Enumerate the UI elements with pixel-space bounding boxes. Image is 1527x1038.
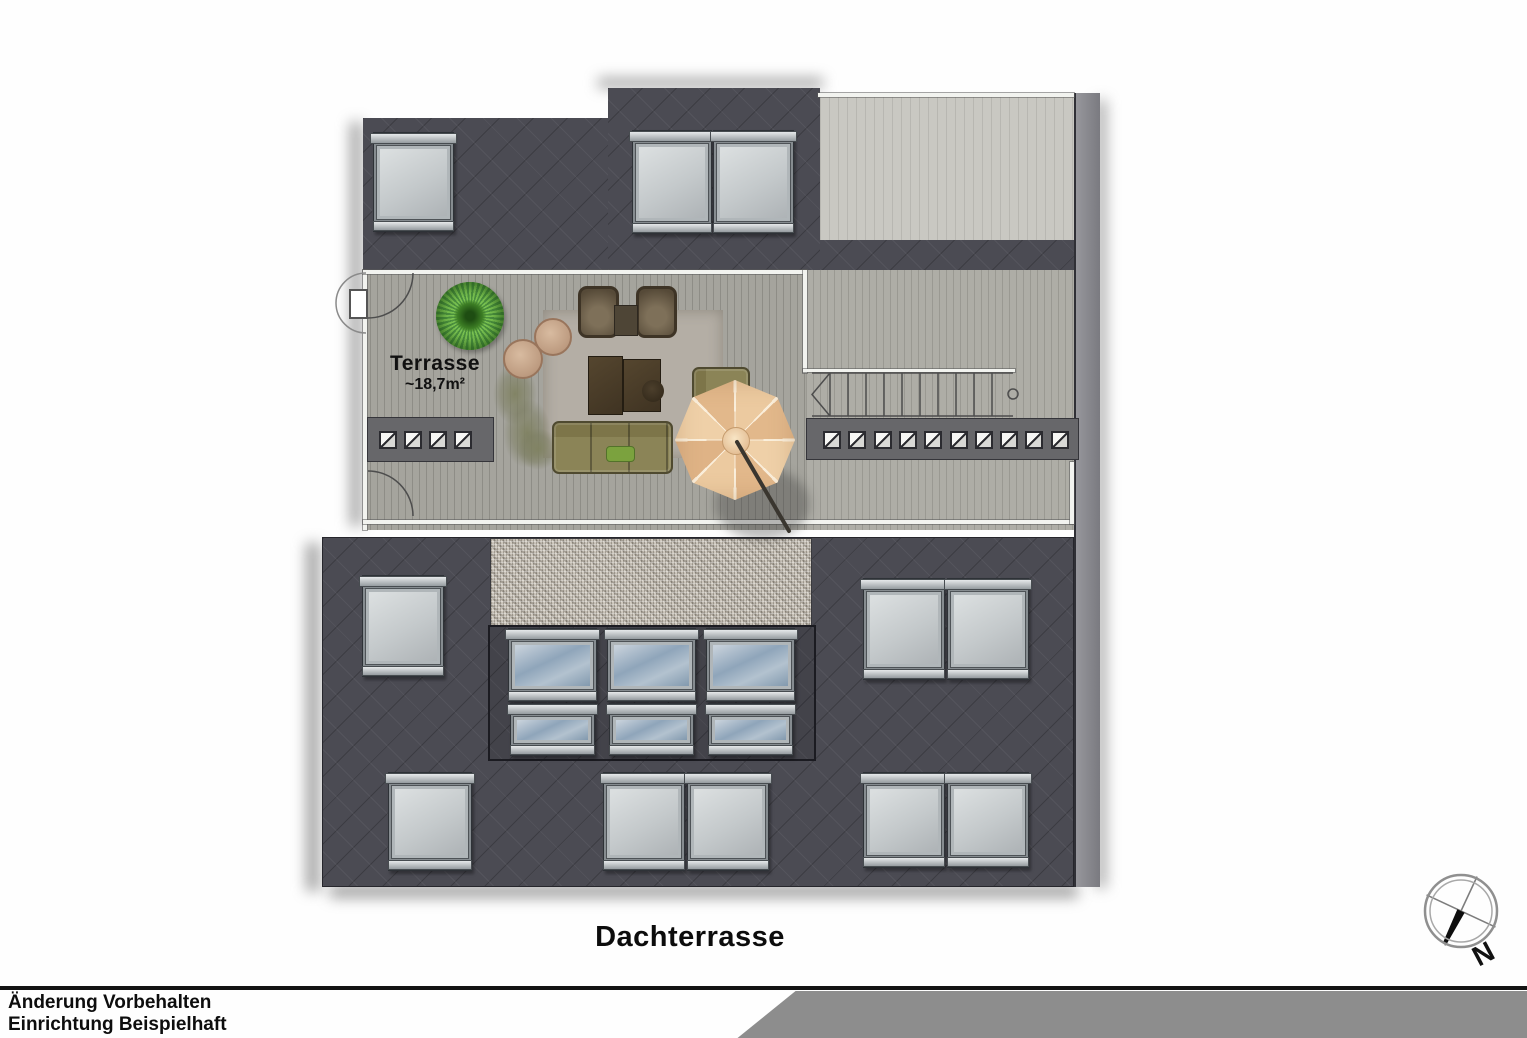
window-glass: [514, 717, 591, 743]
right-decking: [806, 270, 1074, 530]
window-sill-top: [944, 773, 1032, 784]
round-stool: [642, 380, 664, 402]
roof-window: [713, 130, 794, 234]
potted-plant-center: [454, 300, 486, 332]
window-glass: [392, 786, 468, 858]
parasol-hub: [722, 427, 750, 455]
deck-border-line: [1070, 462, 1074, 524]
window-sill-top: [705, 704, 796, 715]
railing-post-square: [924, 431, 942, 449]
roof-window: [863, 578, 945, 680]
window-sill-top: [860, 773, 948, 784]
railing-post-square: [404, 431, 422, 449]
roof-window: [362, 575, 444, 677]
railing-post-square: [1000, 431, 1018, 449]
sofa-pillow: [606, 446, 635, 462]
railing-post-square: [379, 431, 397, 449]
window-glass: [717, 144, 790, 221]
window-sill-top: [604, 629, 699, 640]
window-sill-top: [629, 131, 715, 142]
window-sill-top: [860, 579, 948, 590]
window-glass: [691, 786, 765, 858]
deck-border-line: [363, 270, 367, 530]
deck-border-line: [363, 270, 806, 274]
window-glass: [611, 642, 692, 689]
window-sill-top: [507, 704, 598, 715]
roof-window: [388, 772, 472, 871]
window-sill-bottom: [603, 860, 685, 870]
window-sill-bottom: [947, 857, 1029, 867]
shadow-top-mid: [598, 78, 823, 88]
footer-gray-band: [0, 991, 1527, 1038]
railing-post-square: [1051, 431, 1069, 449]
window-sill-top: [703, 629, 798, 640]
window-glass: [607, 786, 681, 858]
window-sill-bottom: [713, 223, 794, 233]
window-sill-bottom: [863, 857, 945, 867]
skylight-window-small: [609, 703, 694, 756]
skylight-window-large: [706, 628, 795, 702]
window-sill-bottom: [687, 860, 769, 870]
wicker-chair: [578, 286, 619, 338]
window-sill-bottom: [607, 691, 696, 701]
railing-post-square: [848, 431, 866, 449]
deck-border-line: [803, 270, 807, 373]
deck-border-line: [363, 520, 1073, 524]
window-sill-top: [359, 576, 447, 587]
shadow-left-upper: [350, 122, 362, 526]
window-glass: [867, 592, 941, 667]
skylight-window-large: [508, 628, 597, 702]
window-sill-top: [606, 704, 697, 715]
window-sill-bottom: [510, 745, 595, 755]
window-glass: [512, 642, 593, 689]
window-sill-bottom: [609, 745, 694, 755]
roof-window: [632, 130, 712, 234]
window-glass: [366, 589, 440, 664]
window-glass: [613, 717, 690, 743]
window-sill-bottom: [708, 745, 793, 755]
window-glass: [951, 592, 1025, 667]
railing-post-square: [454, 431, 472, 449]
window-sill-bottom: [508, 691, 597, 701]
window-sill-top: [710, 131, 797, 142]
railing-post-square: [874, 431, 892, 449]
window-sill-bottom: [362, 666, 444, 676]
floor-plan-page: { "title": "Dachterrasse", "terrace": { …: [0, 0, 1527, 1038]
roof-window: [687, 772, 769, 871]
footer-note-1: Änderung Vorbehalten: [8, 992, 211, 1014]
page-title: Dachterrasse: [565, 921, 815, 954]
round-side-table: [503, 339, 543, 379]
footer-divider-line: [0, 986, 1527, 990]
window-glass: [377, 146, 450, 219]
terrace-name: Terrasse: [381, 352, 489, 376]
window-glass: [710, 642, 791, 689]
terrace-area: ~18,7m²: [381, 376, 489, 394]
window-sill-top: [684, 773, 772, 784]
neighbor-deck: [820, 93, 1074, 240]
skylight-window-small: [510, 703, 595, 756]
skylight-window-large: [607, 628, 696, 702]
shadow-left-lower: [306, 543, 320, 891]
window-sill-bottom: [632, 223, 712, 233]
window-sill-top: [600, 773, 688, 784]
roof-window: [863, 772, 945, 868]
window-sill-bottom: [388, 860, 472, 870]
railing-post-square: [823, 431, 841, 449]
railing-post-square: [1025, 431, 1043, 449]
window-sill-bottom: [706, 691, 795, 701]
railing-post-square: [950, 431, 968, 449]
window-sill-top: [385, 773, 475, 784]
railing-post-square: [975, 431, 993, 449]
coffee-table: [588, 356, 623, 415]
deck-border-line: [803, 369, 1015, 372]
window-glass: [636, 144, 708, 221]
right-wall-strip: [1074, 93, 1100, 887]
window-sill-top: [505, 629, 600, 640]
gravel-texture-patch: [490, 538, 812, 627]
roof-band-right: [820, 238, 1077, 270]
railing-post-square: [899, 431, 917, 449]
window-sill-bottom: [863, 669, 945, 679]
roof-terrace-plan: Terrasse ~18,7m² Dachterrasse N Änderung…: [0, 0, 1527, 1038]
footer-note-2: Einrichtung Beispielhaft: [8, 1014, 227, 1036]
skylight-window-small: [708, 703, 793, 756]
roof-window: [947, 772, 1029, 868]
window-sill-bottom: [947, 669, 1029, 679]
compass-north-arrow: N: [1416, 866, 1511, 971]
window-sill-bottom: [373, 221, 454, 231]
roof-window: [947, 578, 1029, 680]
window-sill-top: [944, 579, 1032, 590]
window-glass: [712, 717, 789, 743]
roof-window: [603, 772, 685, 871]
window-glass: [867, 786, 941, 855]
terrace-label: Terrasse ~18,7m²: [381, 352, 489, 394]
wicker-chair: [636, 286, 677, 338]
railing-post-square: [429, 431, 447, 449]
roof-window: [373, 132, 454, 232]
window-sill-top: [370, 133, 457, 144]
deck-border-line: [818, 93, 1074, 97]
window-glass: [951, 786, 1025, 855]
small-side-table: [614, 305, 638, 336]
